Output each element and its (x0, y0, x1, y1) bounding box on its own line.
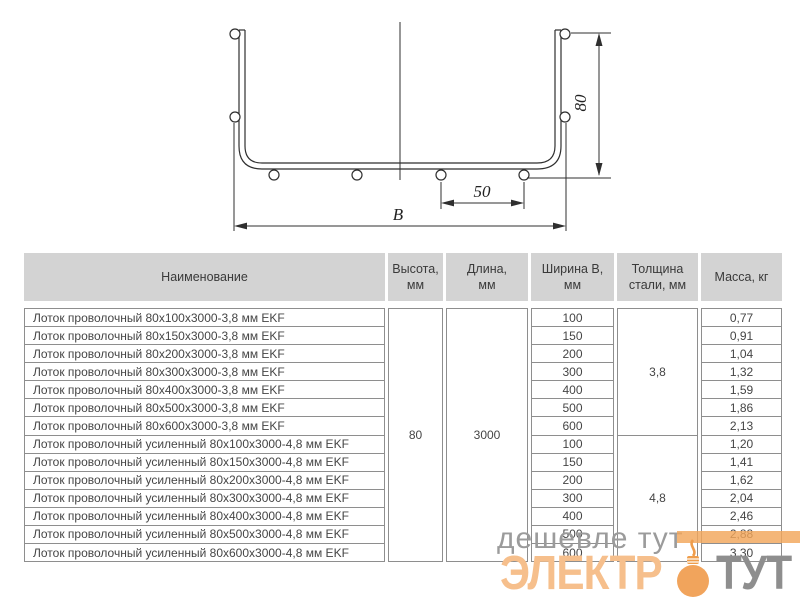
mass-value: 0,91 (702, 326, 781, 344)
column-names: Лоток проволочный 80х100х3000-3,8 мм EKF… (24, 308, 385, 562)
header-length: Длина, мм (446, 253, 528, 301)
table-row: Лоток проволочный 80х300х3000-3,8 мм EKF (25, 362, 384, 380)
width-value: 200 (532, 471, 613, 489)
product-name: Лоток проволочный 80х150х3000-3,8 мм EKF (33, 329, 285, 343)
product-name: Лоток проволочный усиленный 80х200х3000-… (33, 473, 349, 487)
table-header: Наименование Высота, мм Длина, мм Ширина… (24, 253, 782, 301)
logo-accent-bar (677, 531, 800, 543)
width-value: 300 (532, 362, 613, 380)
width-value: 400 (532, 380, 613, 398)
header-mass: Масса, кг (701, 253, 782, 301)
table-row: Лоток проволочный усиленный 80х100х3000-… (25, 435, 384, 453)
logo-text-tut: ТУТ (716, 550, 791, 598)
light-bulb-icon (672, 544, 714, 600)
product-name: Лоток проволочный 80х300х3000-3,8 мм EKF (33, 365, 285, 379)
width-value: 150 (532, 453, 613, 471)
product-name: Лоток проволочный усиленный 80х400х3000-… (33, 509, 349, 523)
width-value: 200 (532, 344, 613, 362)
mass-value: 1,20 (702, 435, 781, 453)
product-name: Лоток проволочный 80х200х3000-3,8 мм EKF (33, 347, 285, 361)
mass-value: 1,59 (702, 380, 781, 398)
mass-value: 1,04 (702, 344, 781, 362)
mass-value: 2,13 (702, 416, 781, 434)
table-row: Лоток проволочный усиленный 80х200х3000-… (25, 471, 384, 489)
height-value: 80 (389, 309, 442, 561)
mass-value: 0,77 (702, 309, 781, 326)
mass-value: 2,04 (702, 489, 781, 507)
table-row: Лоток проволочный 80х100х3000-3,8 мм EKF (25, 309, 384, 326)
table-row: Лоток проволочный усиленный 80х500х3000-… (25, 525, 384, 543)
dim-label-50: 50 (474, 182, 492, 201)
table-row: Лоток проволочный усиленный 80х400х3000-… (25, 507, 384, 525)
logo-text-electro: ЭЛЕКТР (500, 550, 662, 598)
width-value: 500 (532, 398, 613, 416)
dimension-80 (527, 33, 611, 178)
width-value: 150 (532, 326, 613, 344)
thickness-value: 3,8 (618, 309, 697, 435)
width-value: 600 (532, 416, 613, 434)
header-thickness: Толщина стали, мм (617, 253, 698, 301)
table-row: Лоток проволочный усиленный 80х600х3000-… (25, 543, 384, 561)
mass-value: 2,46 (702, 507, 781, 525)
wire-tray-cross-section-drawing: 80 50 B (0, 0, 800, 250)
product-name: Лоток проволочный 80х400х3000-3,8 мм EKF (33, 383, 285, 397)
header-name: Наименование (24, 253, 385, 301)
product-name: Лоток проволочный усиленный 80х500х3000-… (33, 527, 349, 541)
table-row: Лоток проволочный 80х400х3000-3,8 мм EKF (25, 380, 384, 398)
product-name: Лоток проволочный 80х600х3000-3,8 мм EKF (33, 419, 285, 433)
dim-label-80: 80 (571, 94, 590, 112)
mass-value: 1,86 (702, 398, 781, 416)
width-value: 300 (532, 489, 613, 507)
mass-value: 1,32 (702, 362, 781, 380)
product-name: Лоток проволочный усиленный 80х300х3000-… (33, 491, 349, 505)
product-name: Лоток проволочный 80х500х3000-3,8 мм EKF (33, 401, 285, 415)
column-height: 80 (388, 308, 443, 562)
width-value: 100 (532, 309, 613, 326)
product-name: Лоток проволочный усиленный 80х150х3000-… (33, 455, 349, 469)
product-name: Лоток проволочный усиленный 80х600х3000-… (33, 546, 349, 560)
dim-label-B: B (393, 205, 404, 224)
spec-table: Наименование Высота, мм Длина, мм Ширина… (24, 253, 782, 562)
table-row: Лоток проволочный усиленный 80х300х3000-… (25, 489, 384, 507)
header-width: Ширина В, мм (531, 253, 614, 301)
mass-value: 1,41 (702, 453, 781, 471)
table-row: Лоток проволочный 80х200х3000-3,8 мм EKF (25, 344, 384, 362)
product-name: Лоток проволочный 80х100х3000-3,8 мм EKF (33, 311, 285, 325)
table-row: Лоток проволочный 80х150х3000-3,8 мм EKF (25, 326, 384, 344)
table-row: Лоток проволочный усиленный 80х150х3000-… (25, 453, 384, 471)
column-mass: 0,77 0,91 1,04 1,32 1,59 1,86 2,13 1,20 … (701, 308, 782, 562)
width-value: 100 (532, 435, 613, 453)
header-height: Высота, мм (388, 253, 443, 301)
table-row: Лоток проволочный 80х500х3000-3,8 мм EKF (25, 398, 384, 416)
mass-value: 1,62 (702, 471, 781, 489)
product-name: Лоток проволочный усиленный 80х100х3000-… (33, 437, 349, 451)
shop-logo: ЭЛЕКТР ТУТ (500, 550, 800, 600)
table-row: Лоток проволочный 80х600х3000-3,8 мм EKF (25, 416, 384, 434)
